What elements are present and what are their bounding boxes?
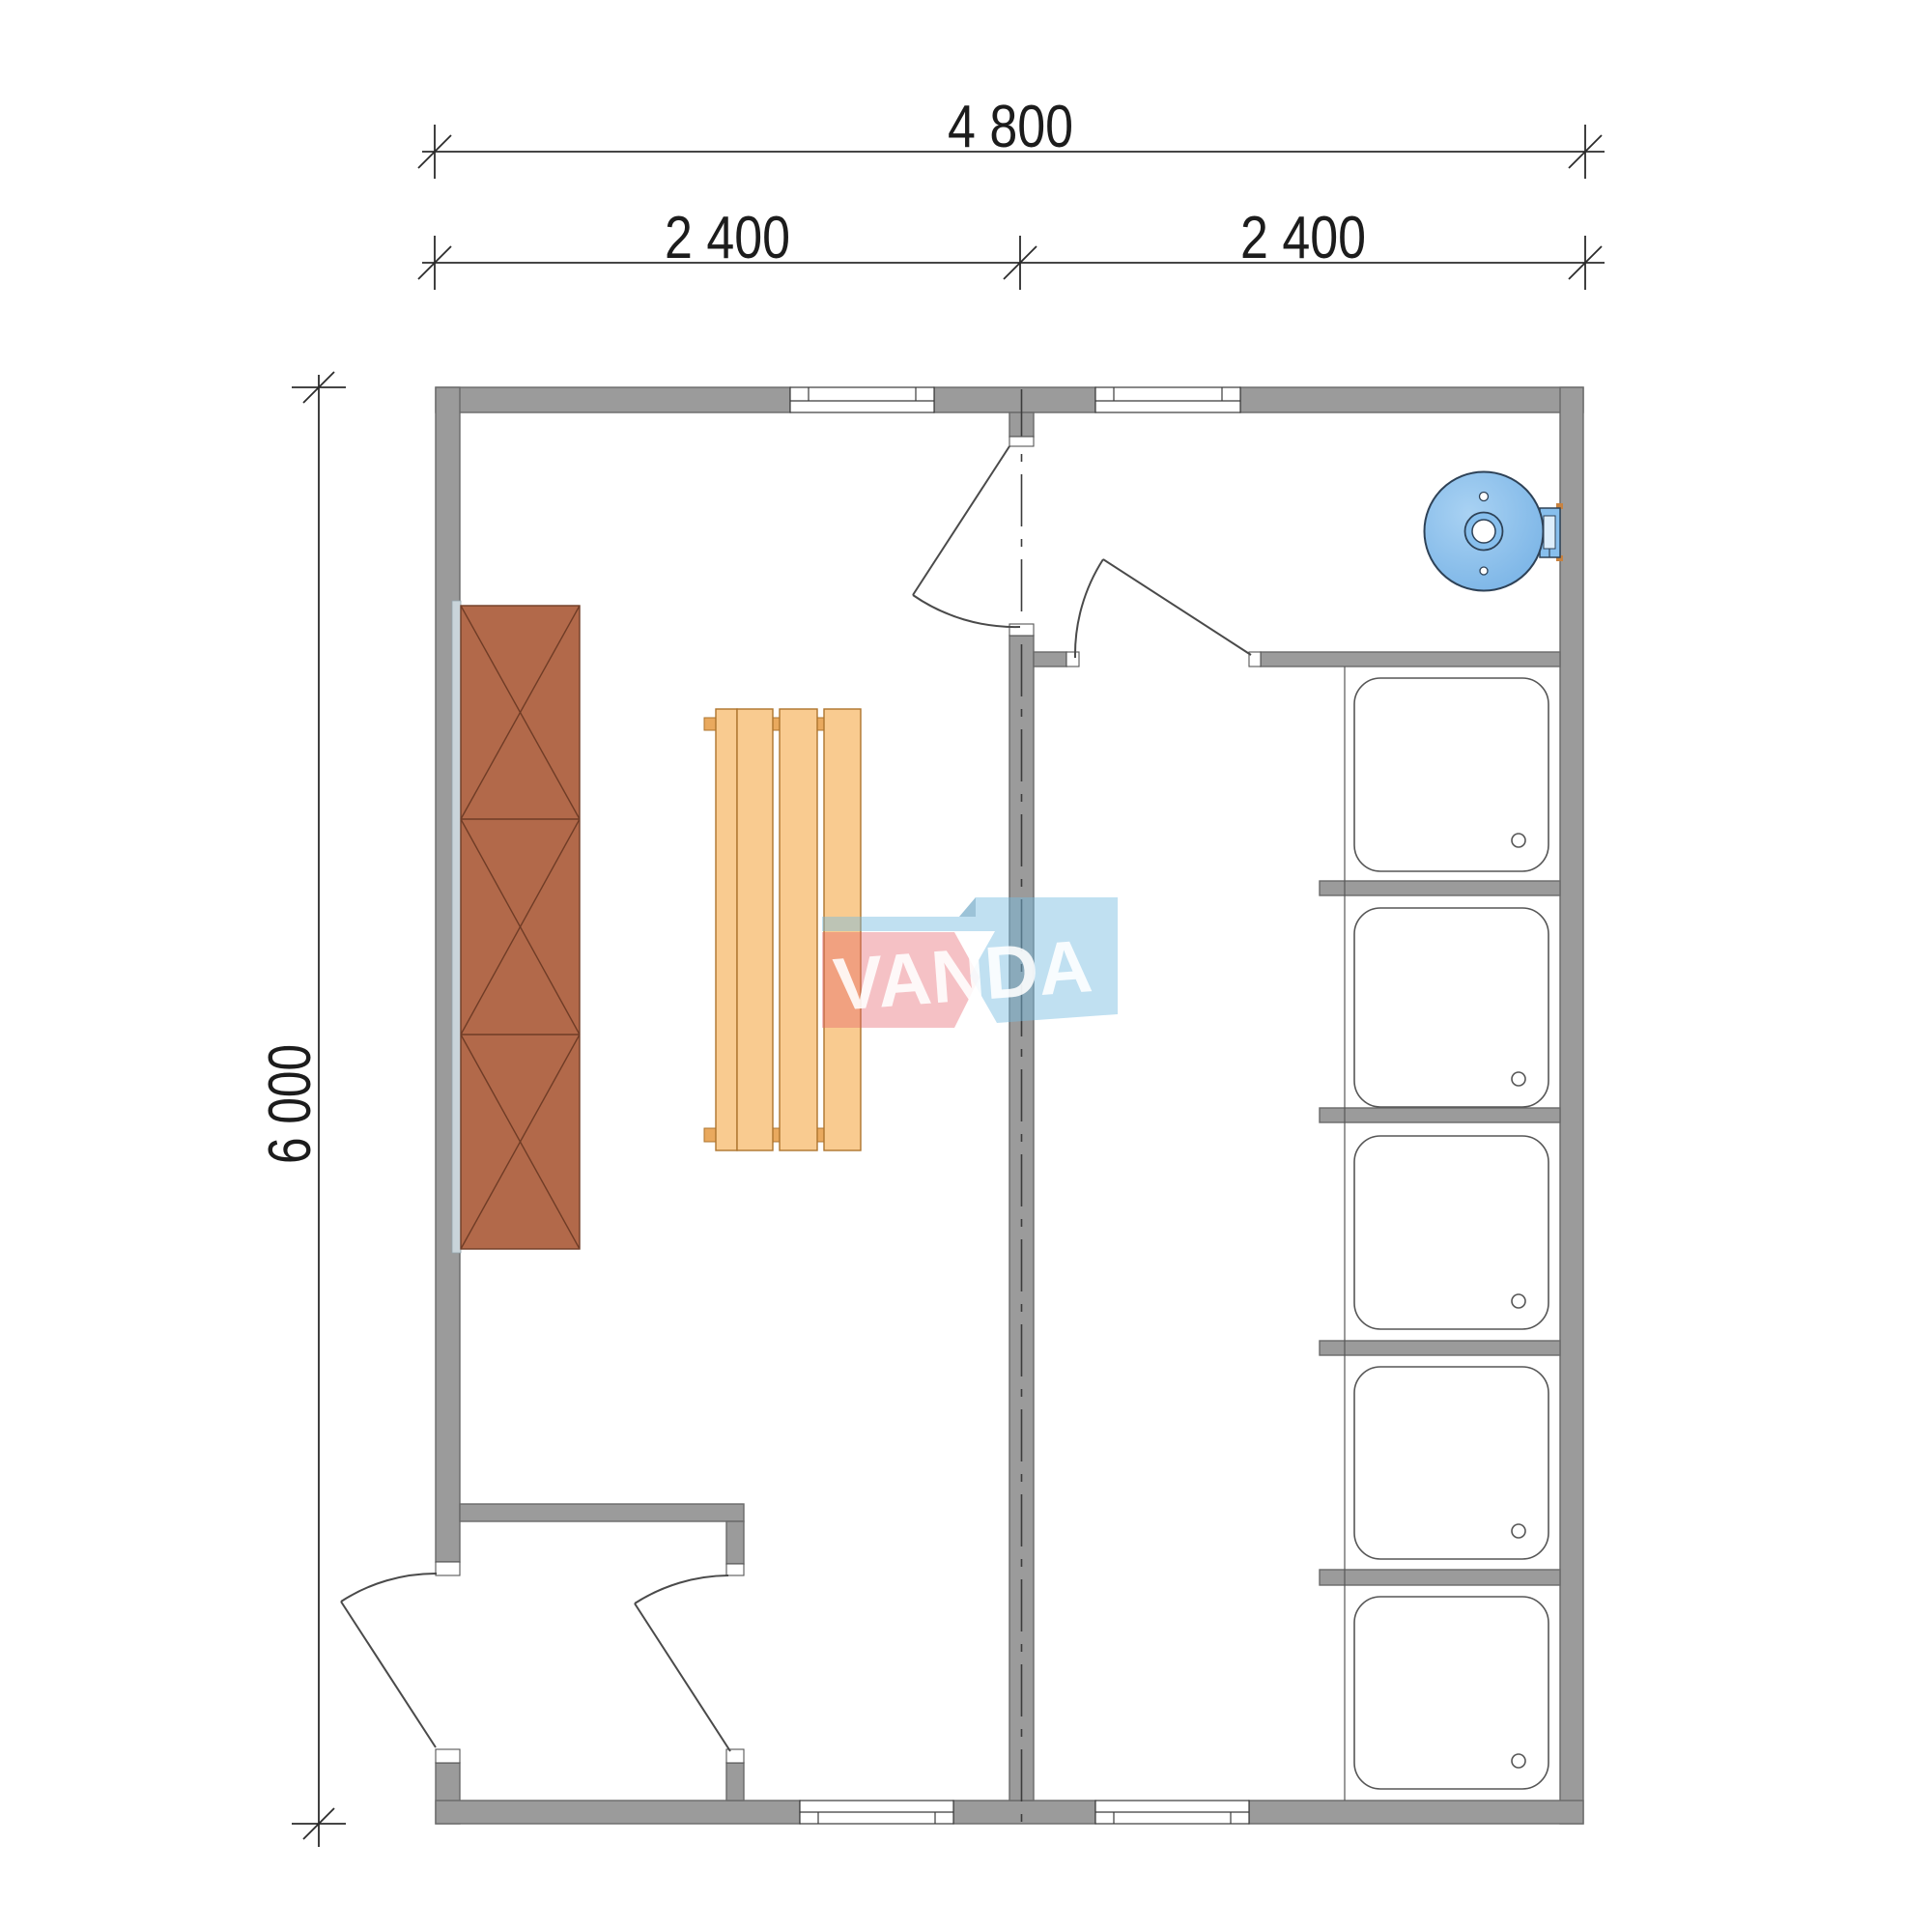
- svg-text:6 000: 6 000: [257, 1044, 324, 1164]
- svg-text:4 800: 4 800: [948, 94, 1073, 160]
- svg-text:2 400: 2 400: [665, 205, 790, 271]
- svg-text:2 400: 2 400: [1240, 205, 1366, 271]
